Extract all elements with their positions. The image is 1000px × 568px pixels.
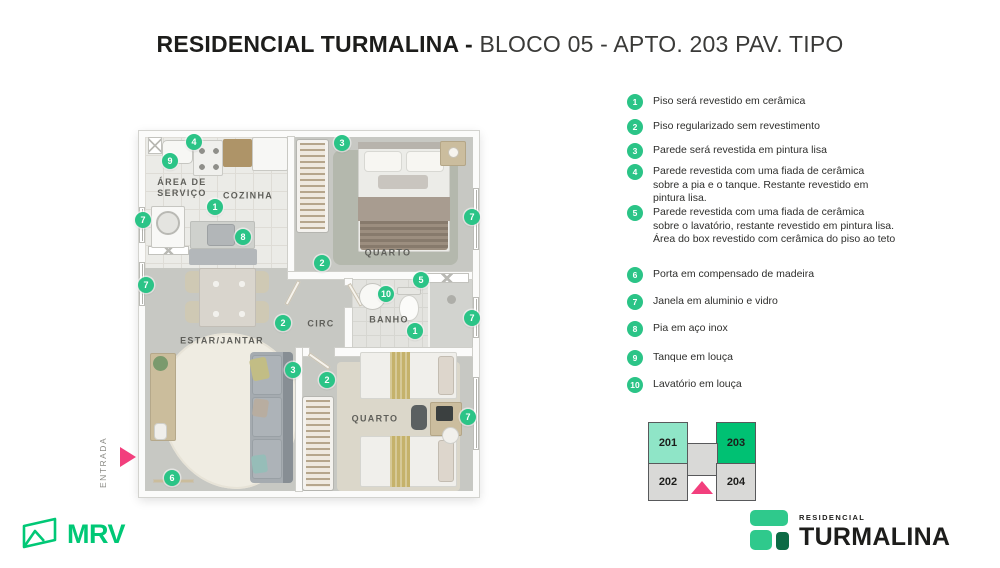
- legend-number-badge: 1: [627, 94, 643, 110]
- plan-marker-7: 7: [135, 212, 151, 228]
- legend-item-7: 7Janela em aluminio e vidro: [627, 294, 778, 310]
- mrv-logo-icon: [20, 516, 60, 553]
- turmalina-icon-block: [750, 510, 788, 526]
- plan-marker-1: 1: [407, 323, 423, 339]
- title-regular: BLOCO 05 - APTO. 203 PAV. TIPO: [480, 31, 844, 57]
- room-label: ESTAR/JANTAR: [180, 336, 264, 347]
- legend-item-3: 3Parede será revestida em pintura lisa: [627, 143, 827, 159]
- legend-number-badge: 9: [627, 350, 643, 366]
- legend-item-4: 4Parede revestida com uma fiada de cerâm…: [627, 164, 868, 206]
- legend-number-badge: 2: [627, 119, 643, 135]
- unit-202: 202: [648, 463, 688, 501]
- turmalina-logo-text: RESIDENCIAL TURMALINA: [799, 509, 950, 553]
- legend-number-badge: 6: [627, 267, 643, 283]
- legend-item-1: 1Piso será revestido em cerâmica: [627, 94, 805, 110]
- mrv-logo: MRV: [20, 516, 125, 553]
- plan-marker-2: 2: [314, 255, 330, 271]
- legend-text: Lavatório em louça: [653, 378, 742, 392]
- floor-plan: ÁREA DE SERVIÇOCOZINHAQUARTOCIRCBANHOEST…: [139, 131, 479, 497]
- legend-text: Janela em aluminio e vidro: [653, 295, 778, 309]
- legend-text: Piso regularizado sem revestimento: [653, 120, 820, 134]
- title-bold: RESIDENCIAL TURMALINA -: [157, 31, 473, 57]
- mrv-logo-text: MRV: [67, 519, 125, 550]
- unit-map-corridor: [687, 443, 718, 476]
- room-label: QUARTO: [365, 248, 412, 259]
- unit-203: 203: [716, 422, 756, 464]
- turmalina-logo: RESIDENCIAL TURMALINA: [748, 509, 950, 553]
- room-label: BANHO: [369, 315, 409, 326]
- plan-marker-4: 4: [186, 134, 202, 150]
- legend-text: Pia em aço inox: [653, 322, 728, 336]
- plan-marker-8: 8: [235, 229, 251, 245]
- room-label: CIRC: [307, 319, 334, 330]
- legend-number-badge: 8: [627, 321, 643, 337]
- plan-marker-7: 7: [464, 310, 480, 326]
- plan-marker-10: 10: [378, 286, 394, 302]
- plan-marker-1: 1: [207, 199, 223, 215]
- legend-item-2: 2Piso regularizado sem revestimento: [627, 119, 820, 135]
- legend-number-badge: 5: [627, 205, 643, 221]
- room-label: ÁREA DE SERVIÇO: [157, 177, 206, 199]
- unit-201: 201: [648, 422, 688, 464]
- turmalina-icon-block: [750, 530, 772, 550]
- turmalina-icon-block-dark: [776, 532, 789, 550]
- plan-marker-7: 7: [460, 409, 476, 425]
- plan-marker-5: 5: [413, 272, 429, 288]
- legend-item-6: 6Porta em compensado de madeira: [627, 267, 814, 283]
- room-label: COZINHA: [223, 191, 273, 202]
- entrance-arrow-icon: [120, 447, 136, 467]
- turmalina-name-text: TURMALINA: [799, 523, 950, 552]
- entrance-label: ENTRADA: [98, 428, 108, 488]
- plan-marker-7: 7: [138, 277, 154, 293]
- plan-marker-9: 9: [162, 153, 178, 169]
- plan-marker-2: 2: [275, 315, 291, 331]
- unit-map-entrance-arrow-icon: [691, 481, 713, 494]
- legend-number-badge: 3: [627, 143, 643, 159]
- plan-marker-7: 7: [464, 209, 480, 225]
- legend-number-badge: 7: [627, 294, 643, 310]
- plan-marker-3: 3: [334, 135, 350, 151]
- turmalina-residencial-text: RESIDENCIAL: [799, 513, 950, 522]
- legend-text: Parede revestida com uma fiada de cerâmi…: [653, 206, 895, 247]
- legend-item-9: 9Tanque em louça: [627, 350, 733, 366]
- plan-marker-6: 6: [164, 470, 180, 486]
- plan-marker-2: 2: [319, 372, 335, 388]
- plan-marker-3: 3: [285, 362, 301, 378]
- legend-item-10: 10Lavatório em louça: [627, 377, 742, 393]
- legend-item-5: 5Parede revestida com uma fiada de cerâm…: [627, 205, 895, 247]
- legend-text: Parede será revestida em pintura lisa: [653, 144, 827, 158]
- legend-text: Porta em compensado de madeira: [653, 268, 814, 282]
- page-title: RESIDENCIAL TURMALINA - BLOCO 05 - APTO.…: [0, 31, 1000, 58]
- legend-item-8: 8Pia em aço inox: [627, 321, 728, 337]
- unit-position-map: 201 203 202 204: [646, 420, 758, 518]
- legend-text: Tanque em louça: [653, 351, 733, 365]
- legend-number-badge: 4: [627, 164, 643, 180]
- legend-text: Piso será revestido em cerâmica: [653, 95, 805, 109]
- room-label: QUARTO: [352, 414, 399, 425]
- unit-204: 204: [716, 463, 756, 501]
- legend-number-badge: 10: [627, 377, 643, 393]
- turmalina-logo-icon: [748, 509, 790, 553]
- legend-text: Parede revestida com uma fiada de cerâmi…: [653, 165, 868, 206]
